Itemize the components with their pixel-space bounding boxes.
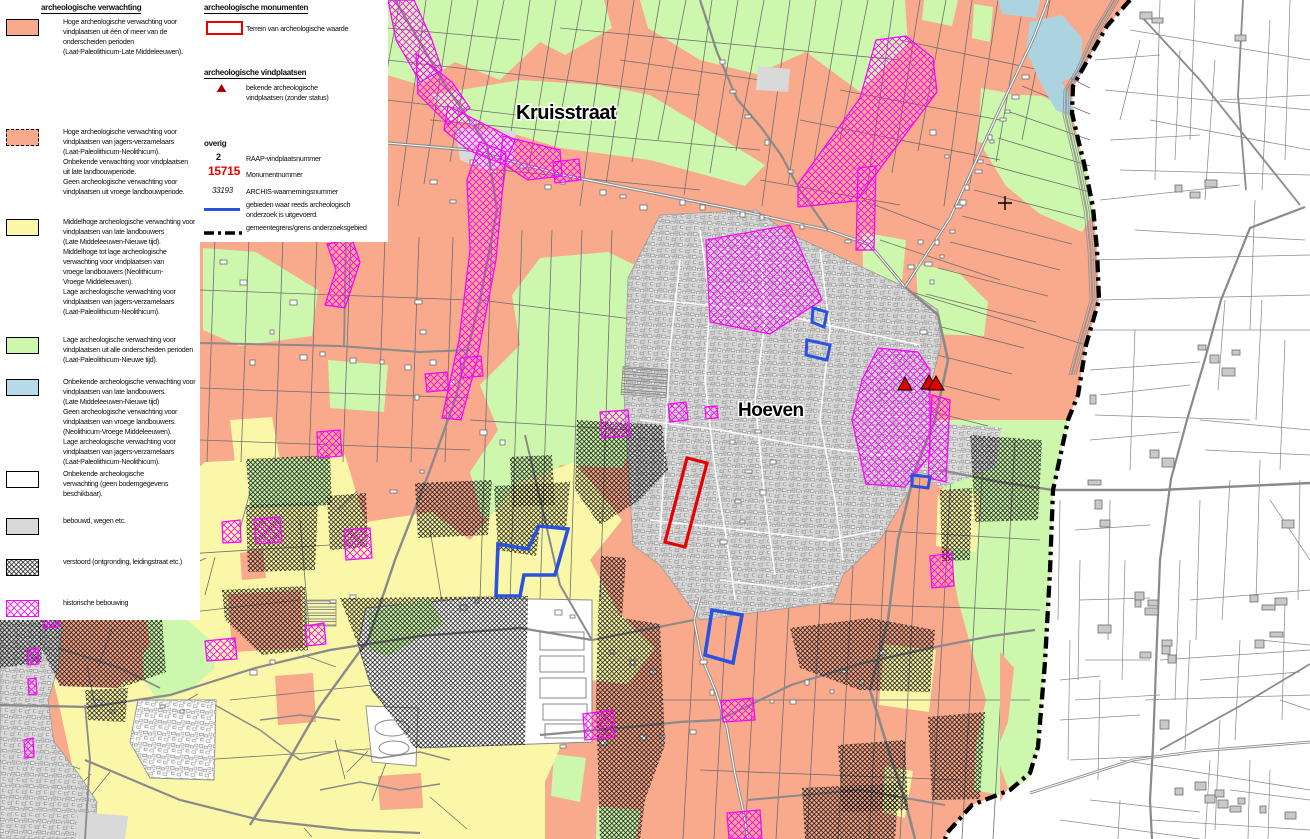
svg-text:Kruisstraat: Kruisstraat — [516, 102, 617, 124]
svg-text:Hoeven: Hoeven — [738, 400, 804, 421]
